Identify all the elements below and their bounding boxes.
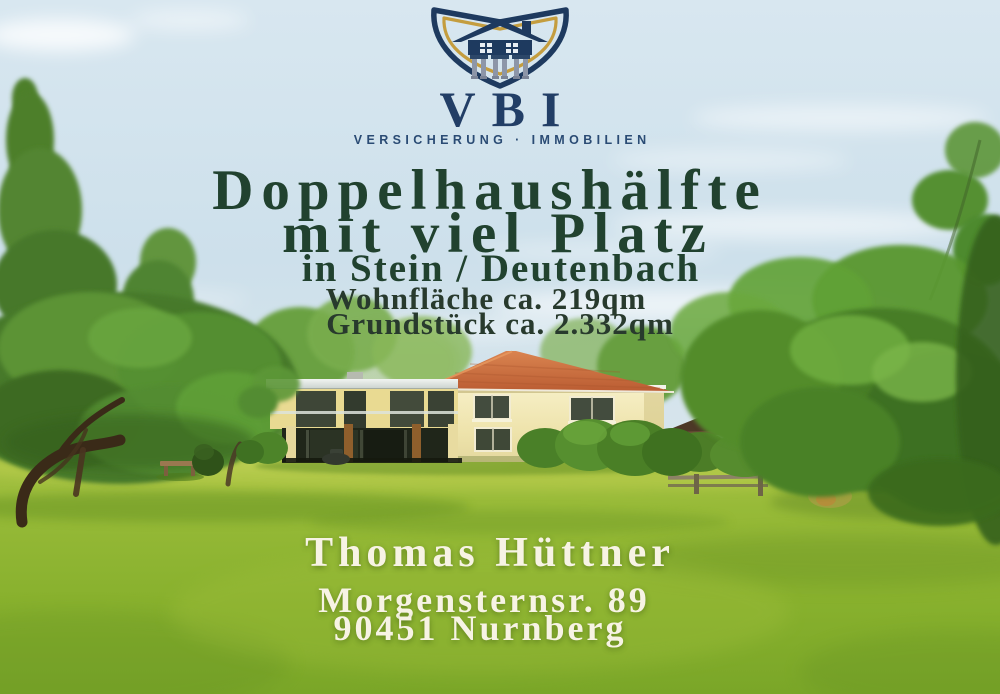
brand-wordmark: VBI xyxy=(0,86,1000,132)
contact-name: Thomas Hüttner xyxy=(0,531,990,575)
contact-city: 90451 Nurnberg xyxy=(0,609,980,647)
brand-tagline: VERSICHERUNG · IMMOBILIEN xyxy=(0,133,1000,147)
real-estate-poster: VBI VERSICHERUNG · IMMOBILIEN Doppelhaus… xyxy=(0,0,1000,694)
chimney xyxy=(347,372,363,380)
plot-area-text: Grundstück ca. 2.332qm xyxy=(0,308,1000,340)
vbi-shield-logo-icon xyxy=(423,6,577,90)
